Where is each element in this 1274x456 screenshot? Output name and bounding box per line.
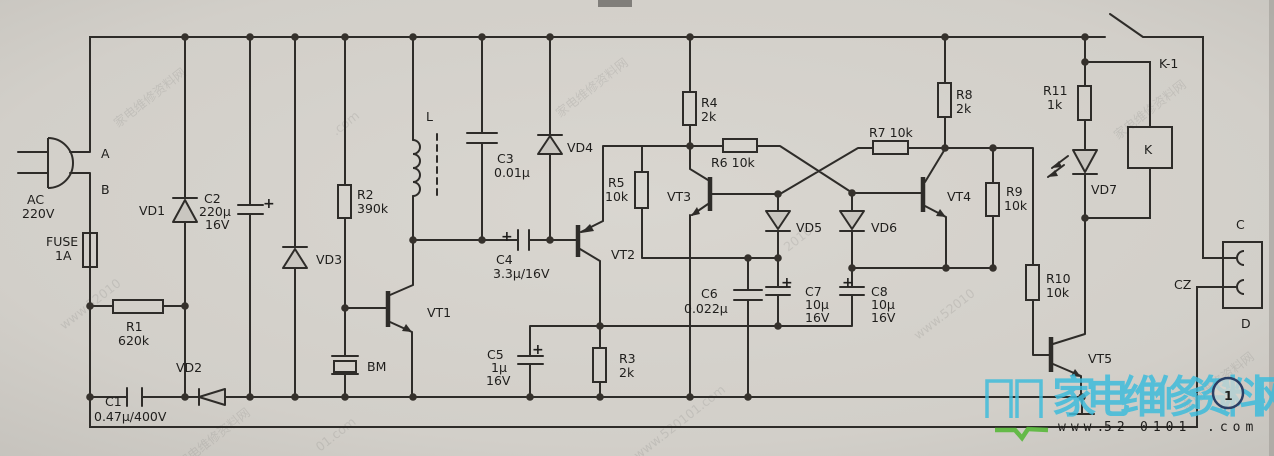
label-terminal-a: A xyxy=(101,146,110,161)
label-relay-contact: K-1 xyxy=(1159,56,1178,71)
logo-url-red: 52 xyxy=(1104,420,1130,435)
label-c1-value: 0.47µ/400V xyxy=(94,409,167,424)
label-ac-voltage: 220V xyxy=(22,206,55,221)
label-r4: R4 xyxy=(701,95,718,110)
label-ac: AC xyxy=(27,192,44,207)
c8-polarity-plus: + xyxy=(842,275,854,291)
label-r2: R2 xyxy=(357,187,374,202)
logo-badge-number: 1 xyxy=(1224,388,1233,403)
label-c4: C4 xyxy=(496,252,513,267)
label-socket-cz: CZ xyxy=(1174,277,1191,292)
label-c8-voltage: 16V xyxy=(871,310,896,325)
label-vt4: VT4 xyxy=(947,189,971,204)
label-r5: R5 xyxy=(608,175,625,190)
logo-url-mid: 0101 xyxy=(1140,420,1191,435)
label-r10: R10 xyxy=(1046,271,1071,286)
label-vd6: VD6 xyxy=(871,220,897,235)
label-r9: R9 xyxy=(1006,184,1023,199)
c7-polarity-plus: + xyxy=(781,275,793,291)
label-socket-d: D xyxy=(1241,316,1251,331)
label-r5-value: 10k xyxy=(605,189,629,204)
label-c6-value: 0.022µ xyxy=(684,301,728,316)
label-c2-voltage: 16V xyxy=(205,217,230,232)
label-r7: R7 10k xyxy=(869,125,914,140)
label-c1: C1 xyxy=(105,394,122,409)
label-vd7: VD7 xyxy=(1091,182,1117,197)
c5-polarity-plus: + xyxy=(532,342,544,358)
label-r3-value: 2k xyxy=(619,365,635,380)
label-vt1: VT1 xyxy=(427,305,451,320)
label-r10-value: 10k xyxy=(1046,285,1070,300)
label-vt5: VT5 xyxy=(1088,351,1112,366)
label-l: L xyxy=(426,109,433,124)
label-vd2: VD2 xyxy=(176,360,202,375)
label-r1: R1 xyxy=(126,319,143,334)
label-c6: C6 xyxy=(701,286,718,301)
label-relay-k: K xyxy=(1144,142,1153,157)
logo-url-www: www. xyxy=(1058,420,1109,435)
c2-polarity-plus: + xyxy=(263,196,275,212)
label-fuse: FUSE xyxy=(46,234,78,249)
label-c3: C3 xyxy=(497,151,514,166)
label-r11: R11 xyxy=(1043,83,1068,98)
c4-polarity-plus: + xyxy=(501,229,513,245)
label-vd3: VD3 xyxy=(316,252,342,267)
scan-artifact xyxy=(598,0,632,7)
label-r6: R6 10k xyxy=(711,155,756,170)
label-r3: R3 xyxy=(619,351,636,366)
schematic-page: 家电维修资料网 www.52010 家电维修资料网 01.com .com 家电… xyxy=(0,0,1274,456)
label-vt2: VT2 xyxy=(611,247,635,262)
label-bm: BM xyxy=(367,359,386,374)
label-vt3: VT3 xyxy=(667,189,691,204)
circuit-schematic-canvas: 家电维修资料网 www.52010 家电维修资料网 01.com .com 家电… xyxy=(0,0,1274,456)
label-r11-value: 1k xyxy=(1047,97,1063,112)
label-c5-voltage: 16V xyxy=(486,373,511,388)
label-vd5: VD5 xyxy=(796,220,822,235)
label-socket-c: C xyxy=(1236,217,1245,232)
label-r4-value: 2k xyxy=(701,109,717,124)
label-c3-value: 0.01µ xyxy=(494,165,530,180)
label-r9-value: 10k xyxy=(1004,198,1028,213)
label-c4-value: 3.3µ/16V xyxy=(493,266,550,281)
label-vd1: VD1 xyxy=(139,203,165,218)
label-vd4: VD4 xyxy=(567,140,593,155)
label-r1-value: 620k xyxy=(118,333,150,348)
label-r2-value: 390k xyxy=(357,201,389,216)
label-r8-value: 2k xyxy=(956,101,972,116)
label-fuse-rating: 1A xyxy=(55,248,72,263)
label-c7-voltage: 16V xyxy=(805,310,830,325)
logo-url-dot: .com xyxy=(1207,420,1258,435)
label-r8: R8 xyxy=(956,87,973,102)
label-terminal-b: B xyxy=(101,182,110,197)
